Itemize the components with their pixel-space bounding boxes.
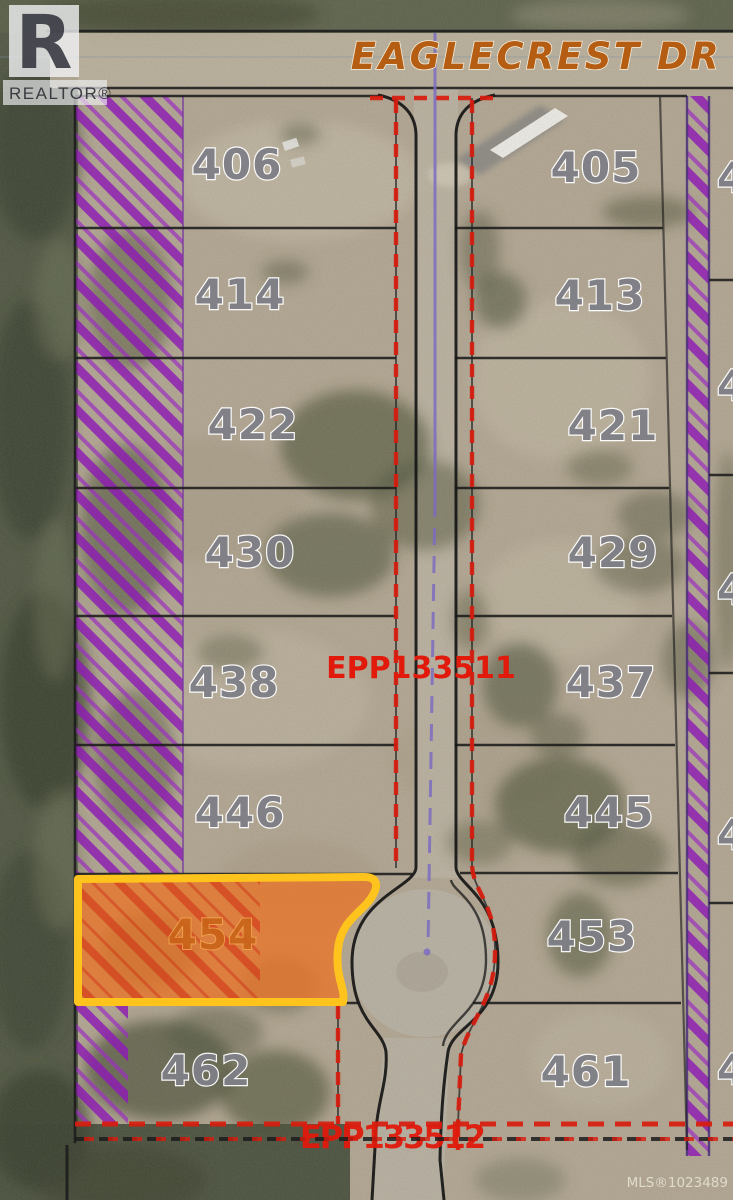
lot-label-438: 438 [189, 658, 280, 707]
lot-label-429: 429 [568, 528, 659, 577]
lot-label-414: 414 [195, 270, 286, 319]
lot-label-430: 430 [205, 528, 296, 577]
lot-label-406: 406 [192, 140, 283, 189]
lot-label-446: 446 [195, 788, 286, 837]
road-plan-label: EPP133511 [326, 651, 516, 686]
lot-label-454: 454 [168, 910, 259, 959]
realtor-r-icon: R [16, 0, 73, 86]
edge-lot-label: 4 [717, 153, 733, 202]
lot-label-453: 453 [547, 912, 638, 961]
edge-lot-label: 4 [717, 810, 733, 859]
lot-label-445: 445 [564, 788, 655, 837]
edge-lot-label: 4 [717, 1045, 733, 1094]
lot-label-405: 405 [551, 143, 642, 192]
aerial-lot-map: EPP133511 EPP133512 EAGLECREST DR 406 41… [0, 0, 733, 1200]
listing-map: EPP133511 EPP133512 EAGLECREST DR 406 41… [0, 0, 733, 1200]
street-name-label: EAGLECREST DR [351, 35, 722, 78]
edge-lot-label: 4 [717, 361, 733, 410]
lot-label-461: 461 [541, 1047, 632, 1096]
lot-label-413: 413 [555, 271, 646, 320]
mls-number-label: MLS®1023489 [627, 1175, 728, 1191]
lot-label-437: 437 [566, 658, 657, 707]
lot-label-422: 422 [208, 400, 299, 449]
edge-lot-label: 4 [717, 565, 733, 614]
realtor-wordmark: REALTOR® [9, 84, 112, 103]
lot-label-462: 462 [161, 1046, 252, 1095]
lot-label-421: 421 [568, 401, 659, 450]
